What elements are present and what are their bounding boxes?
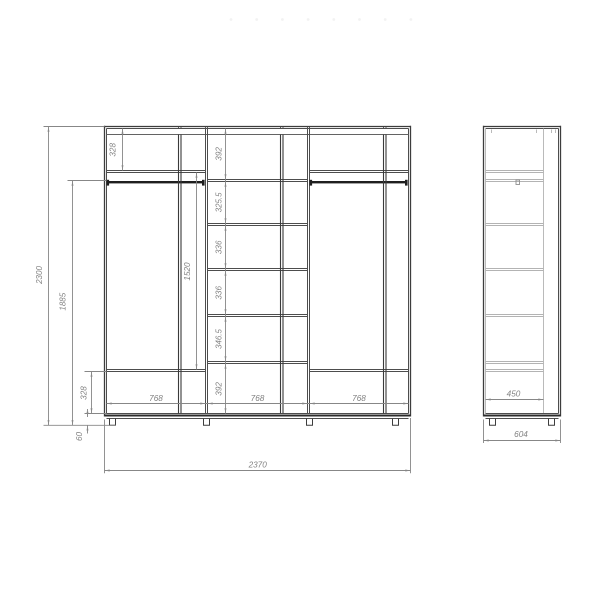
svg-text:328: 328 [109, 143, 118, 157]
svg-text:1520: 1520 [183, 262, 192, 281]
svg-text:328: 328 [79, 386, 88, 400]
svg-text:346.5: 346.5 [214, 329, 223, 349]
svg-text:336: 336 [214, 286, 223, 300]
svg-text:2300: 2300 [35, 266, 44, 285]
svg-text:768: 768 [352, 394, 366, 403]
svg-text:1885: 1885 [59, 292, 68, 310]
svg-text:60: 60 [75, 432, 84, 442]
svg-text:450: 450 [507, 389, 521, 398]
svg-text:768: 768 [149, 394, 163, 403]
svg-text:336: 336 [214, 240, 223, 254]
svg-text:768: 768 [251, 394, 265, 403]
svg-text:2370: 2370 [248, 461, 268, 470]
svg-text:392: 392 [214, 147, 223, 161]
svg-text:325.5: 325.5 [214, 192, 223, 212]
svg-text:392: 392 [214, 382, 223, 396]
svg-text:604: 604 [514, 430, 528, 439]
